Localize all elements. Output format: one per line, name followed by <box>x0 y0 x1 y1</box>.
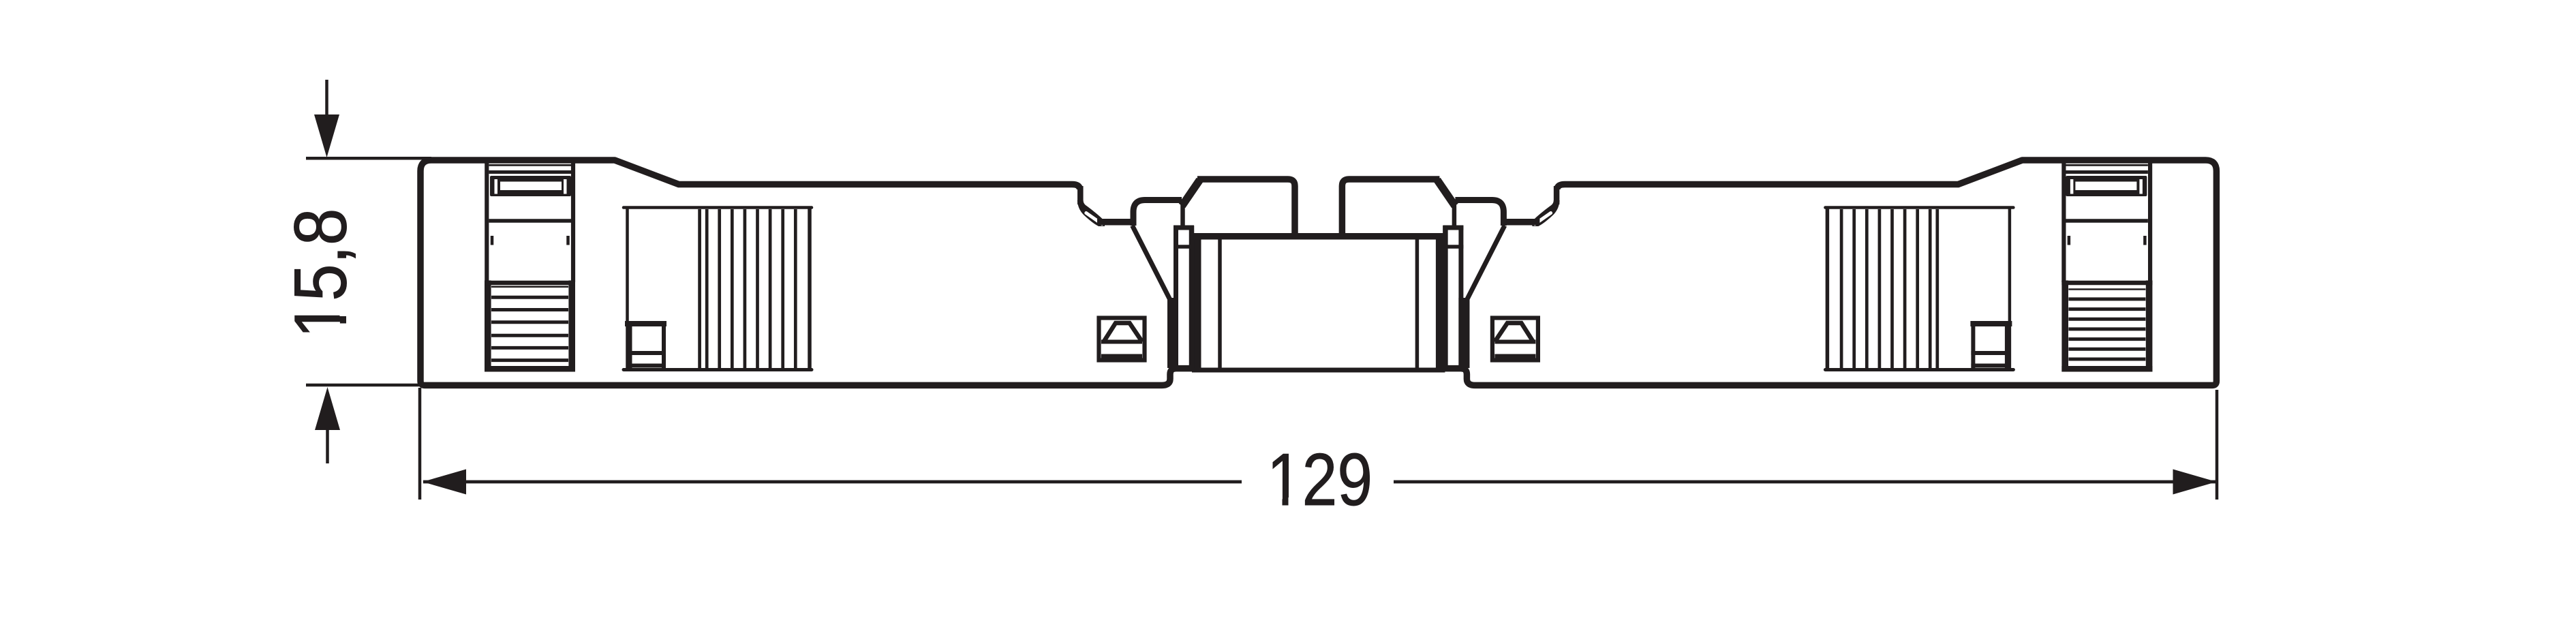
svg-text:129: 129 <box>1267 438 1373 521</box>
svg-text:15,8: 15,8 <box>279 209 363 339</box>
